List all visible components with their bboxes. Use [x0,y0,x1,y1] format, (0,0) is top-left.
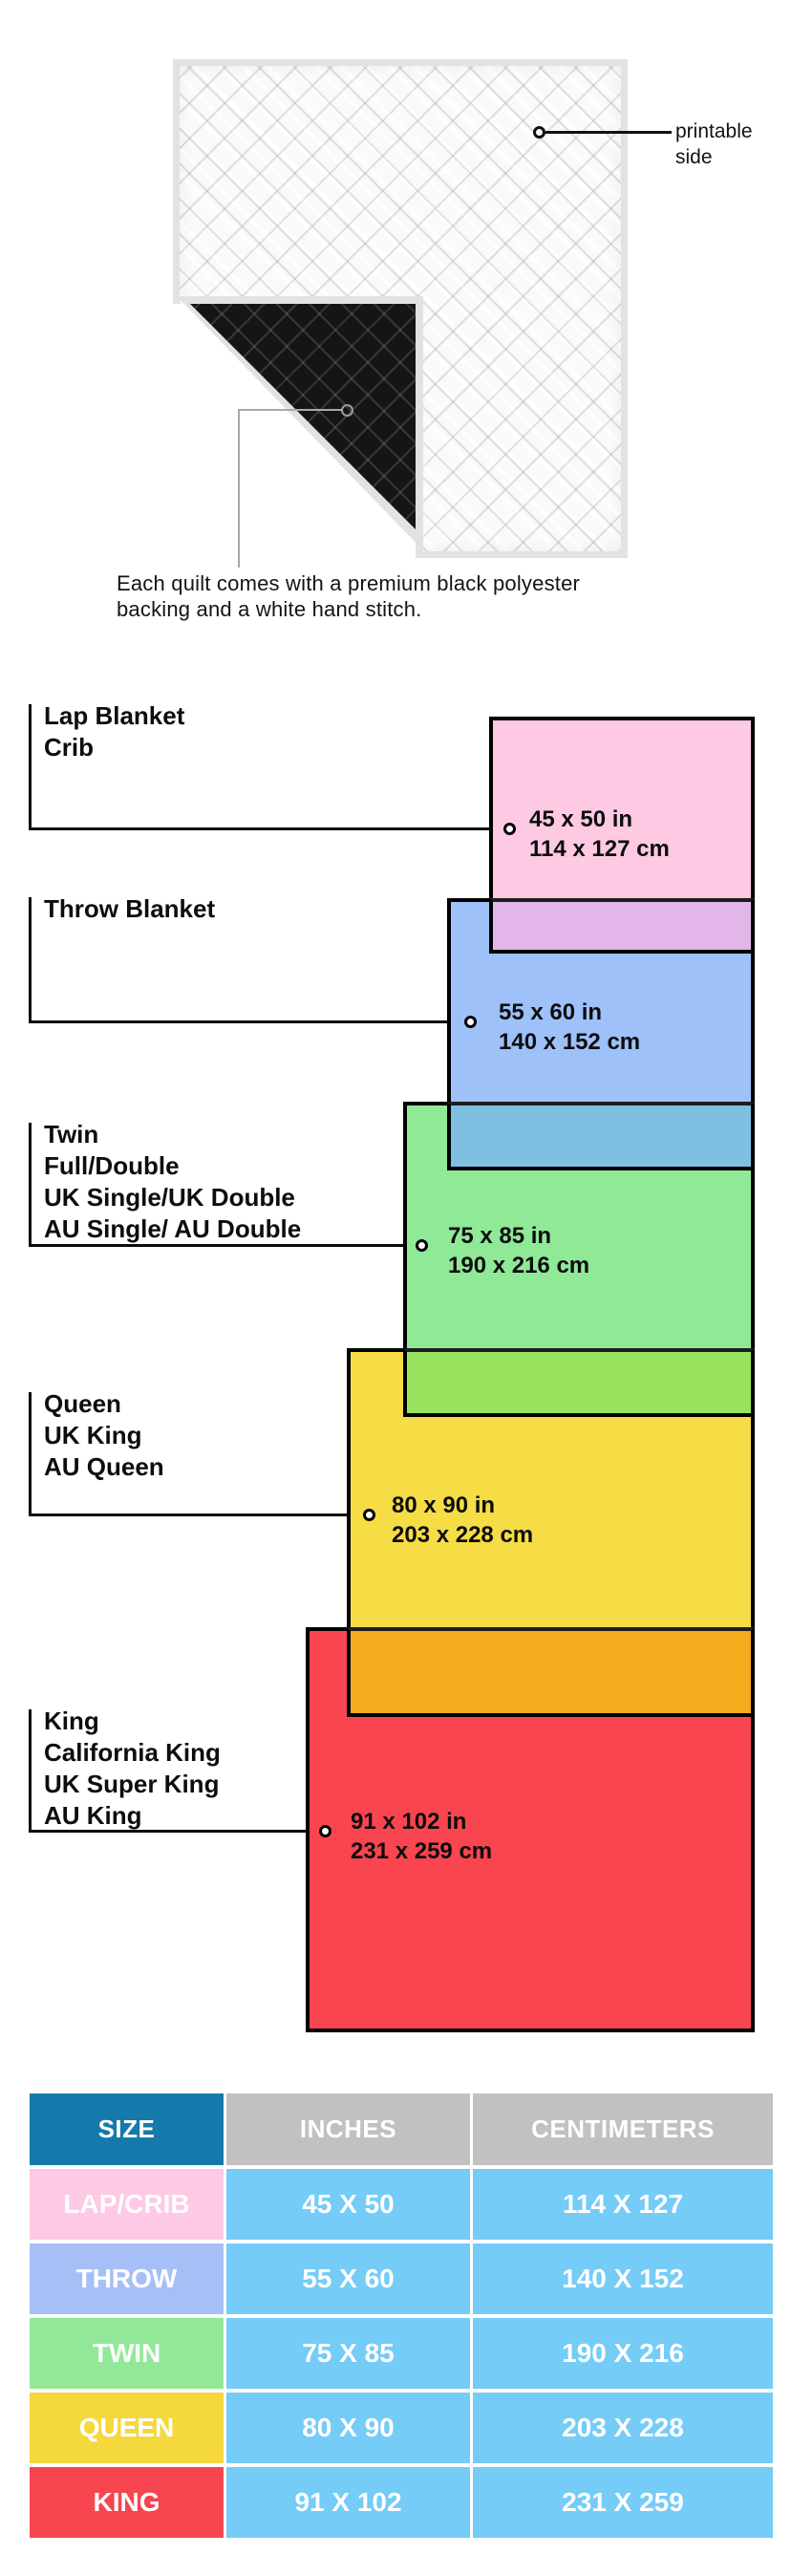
dim-lap: 45 x 50 in 114 x 127 cm [529,805,670,864]
table-row-twin-inches: 75 X 85 [226,2318,470,2389]
table-row-queen-cm: 203 X 228 [473,2393,773,2463]
table-row-lap-size: LAP/CRIB [30,2169,224,2240]
dim-twin: 75 x 85 in 190 x 216 cm [448,1221,589,1280]
table-header-centimeters: CENTIMETERS [473,2093,773,2165]
table-row-queen-inches: 80 X 90 [226,2393,470,2463]
leader-dot-twin-icon [416,1239,428,1252]
leader-tick-king [29,1709,32,1832]
leader-dot-queen-icon [363,1509,375,1521]
leader-line-throw [29,1020,465,1023]
printable-side-leader-line [545,131,672,134]
table-row-throw-cm: 140 X 152 [473,2243,773,2314]
table-row-king-inches: 91 X 102 [226,2467,470,2538]
quilt-illustration [173,59,628,558]
table-row-king-cm: 231 X 259 [473,2467,773,2538]
table-row-throw-size: THROW [30,2243,224,2314]
overlap-throw-twin [447,1102,755,1170]
backing-caption-line1: Each quilt comes with a premium black po… [117,570,580,596]
leader-dot-throw-icon [464,1016,477,1028]
leader-tick-twin [29,1123,32,1246]
leader-dot-lap-icon [503,823,516,835]
overlap-queen-king [347,1627,755,1717]
dim-king: 91 x 102 in 231 x 259 cm [351,1807,492,1866]
label-lap-crib: Lap Blanket Crib [44,700,184,763]
backing-leader-line-h [238,409,343,411]
printable-side-marker-icon [533,126,545,139]
label-twin: Twin Full/Double UK Single/UK Double AU … [44,1119,301,1245]
leader-tick-queen [29,1392,32,1515]
leader-line-queen [29,1513,364,1516]
table-row-queen-size: QUEEN [30,2393,224,2463]
table-row-lap-cm: 114 X 127 [473,2169,773,2240]
label-queen: Queen UK King AU Queen [44,1388,164,1483]
table-header-inches: INCHES [226,2093,470,2165]
table-header-size: SIZE [30,2093,224,2165]
leader-line-twin [29,1244,417,1247]
leader-dot-king-icon [319,1825,331,1837]
leader-line-king [29,1830,320,1833]
overlap-twin-queen [403,1348,755,1417]
leader-tick-throw [29,897,32,1022]
table-row-lap-inches: 45 X 50 [226,2169,470,2240]
backing-caption-line2: backing and a white hand stitch. [117,596,580,622]
size-comparison-table: SIZE INCHES CENTIMETERS LAP/CRIB 45 X 50… [30,2093,773,2538]
leader-line-lap [29,827,504,830]
label-king: King California King UK Super King AU Ki… [44,1706,221,1832]
quilt-size-chart-page: printable side Each quilt comes with a p… [0,0,791,2576]
table-row-throw-inches: 55 X 60 [226,2243,470,2314]
overlap-lap-throw [489,898,755,954]
label-throw: Throw Blanket [44,893,215,925]
table-row-king-size: KING [30,2467,224,2538]
table-row-twin-cm: 190 X 216 [473,2318,773,2389]
leader-tick-lap [29,704,32,829]
dim-throw: 55 x 60 in 140 x 152 cm [499,998,640,1057]
quilt-binding-strip [416,296,423,558]
printable-side-label: printable side [675,118,775,170]
backing-leader-line-v [238,409,240,568]
dim-queen: 80 x 90 in 203 x 228 cm [392,1491,533,1550]
table-row-twin-size: TWIN [30,2318,224,2389]
backing-caption: Each quilt comes with a premium black po… [117,570,580,622]
